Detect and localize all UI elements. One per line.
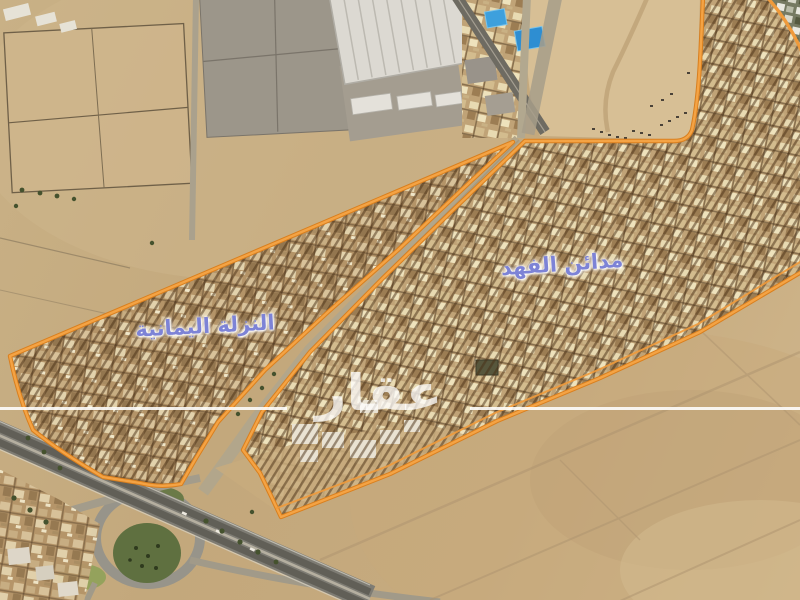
watermark-line-right [470, 407, 800, 410]
map-viewport[interactable]: عقار النزلة اليمانية مدائن الفهد [0, 0, 800, 600]
satellite-basemap [0, 0, 800, 600]
watermark-line-left [0, 407, 287, 410]
